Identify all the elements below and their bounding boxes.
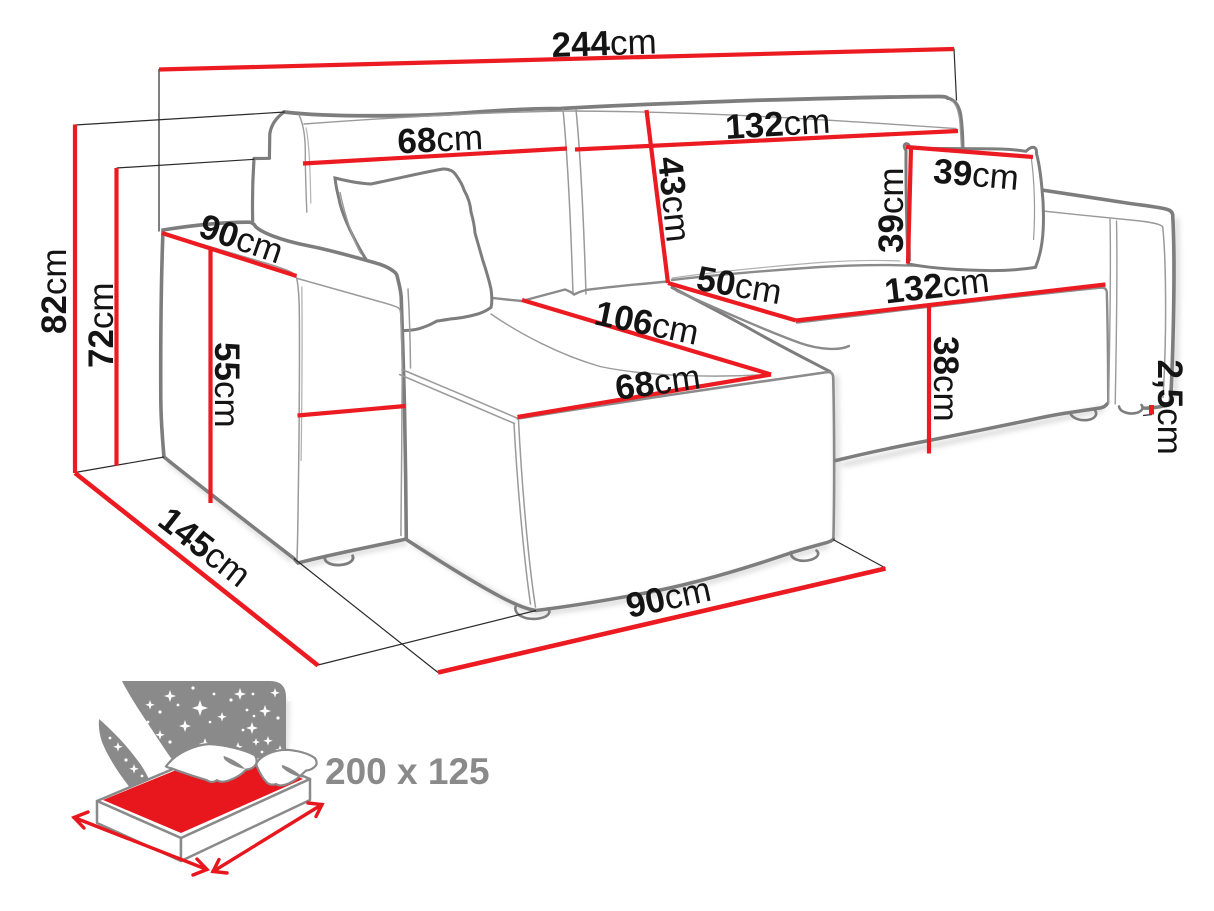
svg-text:39cm: 39cm xyxy=(872,167,911,253)
svg-text:39cm: 39cm xyxy=(932,152,1021,198)
svg-text:72cm: 72cm xyxy=(82,282,121,368)
svg-text:38cm: 38cm xyxy=(926,336,965,422)
svg-text:68cm: 68cm xyxy=(396,118,484,161)
svg-text:132cm: 132cm xyxy=(724,102,831,147)
svg-text:55cm: 55cm xyxy=(207,342,246,428)
svg-text:244cm: 244cm xyxy=(551,22,657,65)
svg-text:82cm: 82cm xyxy=(35,248,74,334)
svg-text:2,5cm: 2,5cm xyxy=(1150,360,1189,455)
svg-text:200 x 125: 200 x 125 xyxy=(325,751,490,792)
